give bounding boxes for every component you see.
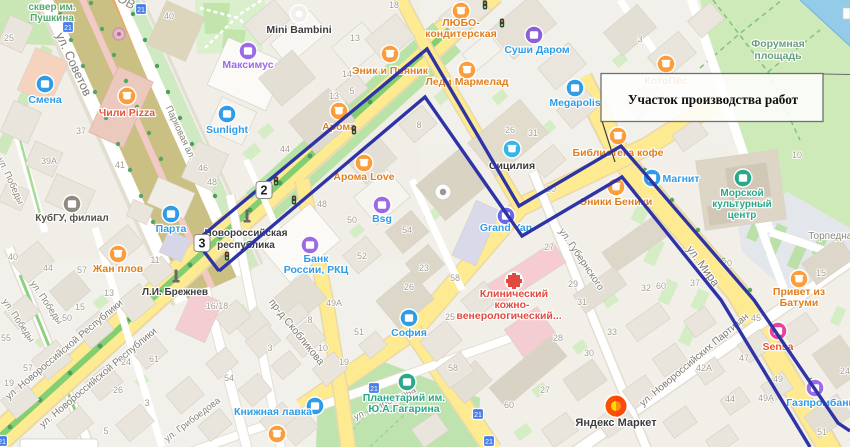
svg-text:26: 26	[505, 125, 515, 135]
svg-text:площадь: площадь	[754, 50, 802, 62]
svg-text:центр: центр	[728, 210, 757, 221]
svg-text:18: 18	[389, 0, 399, 10]
svg-text:23: 23	[419, 263, 429, 273]
svg-text:15: 15	[816, 268, 826, 278]
svg-text:10: 10	[792, 150, 802, 160]
svg-text:Эник и Пьяник: Эник и Пьяник	[352, 65, 429, 77]
svg-text:42А: 42А	[696, 363, 712, 373]
svg-text:58: 58	[450, 273, 460, 283]
svg-text:Максимус: Максимус	[222, 59, 273, 71]
svg-text:Sunlight: Sunlight	[206, 124, 248, 136]
svg-text:61: 61	[149, 354, 159, 364]
svg-text:39А: 39А	[41, 156, 57, 166]
svg-text:58: 58	[448, 363, 458, 373]
svg-text:47: 47	[739, 353, 749, 363]
svg-text:София: София	[391, 327, 427, 339]
svg-text:40: 40	[8, 252, 18, 262]
svg-text:Книжная лавка: Книжная лавка	[234, 406, 312, 418]
svg-text:30: 30	[584, 348, 594, 358]
svg-text:Bsg: Bsg	[372, 213, 392, 225]
svg-text:57: 57	[23, 363, 33, 373]
svg-text:54: 54	[402, 225, 412, 235]
svg-text:48: 48	[317, 199, 327, 209]
svg-text:13: 13	[329, 91, 339, 101]
svg-text:Л.И. Брежнев: Л.И. Брежнев	[142, 287, 208, 298]
svg-text:46: 46	[198, 163, 208, 173]
svg-text:37: 37	[76, 126, 86, 136]
svg-text:19: 19	[4, 378, 14, 388]
svg-text:Grand Yan: Grand Yan	[480, 222, 532, 234]
svg-text:27: 27	[540, 385, 550, 395]
svg-text:21: 21	[0, 439, 6, 446]
svg-text:Mini Bambini: Mini Bambini	[266, 24, 331, 36]
svg-text:41: 41	[115, 160, 125, 170]
svg-text:Смена: Смена	[28, 94, 62, 106]
svg-text:13: 13	[104, 288, 114, 298]
svg-text:15: 15	[75, 302, 85, 312]
svg-text:32: 32	[641, 283, 651, 293]
svg-text:5: 5	[103, 426, 108, 436]
svg-text:3: 3	[144, 398, 149, 408]
svg-text:13: 13	[350, 33, 360, 43]
svg-text:Суши Даром: Суши Даром	[504, 44, 570, 56]
svg-text:25: 25	[445, 312, 455, 322]
svg-text:60: 60	[656, 281, 666, 291]
svg-text:Арома Love: Арома Love	[333, 171, 394, 183]
svg-text:26: 26	[113, 385, 123, 395]
svg-text:44: 44	[280, 144, 290, 154]
svg-text:26: 26	[404, 282, 414, 292]
svg-text:венерологический...: венерологический...	[456, 310, 561, 322]
svg-text:49А: 49А	[758, 393, 774, 403]
svg-text:21: 21	[64, 25, 72, 32]
svg-text:Парта: Парта	[156, 223, 187, 235]
svg-text:11: 11	[150, 255, 159, 265]
svg-text:50: 50	[347, 215, 357, 225]
svg-text:Жан плов: Жан плов	[92, 263, 144, 275]
svg-text:55: 55	[1, 333, 11, 343]
svg-text:Чили Pizza: Чили Pizza	[99, 107, 155, 119]
svg-text:Магнит: Магнит	[662, 173, 699, 185]
svg-text:50: 50	[62, 313, 72, 323]
svg-text:40: 40	[164, 11, 174, 21]
svg-text:45: 45	[751, 313, 761, 323]
svg-text:44: 44	[725, 394, 735, 404]
svg-text:Газпромбанк: Газпромбанк	[786, 397, 850, 409]
svg-text:27: 27	[544, 242, 554, 252]
svg-text:37: 37	[690, 278, 700, 288]
svg-text:Леди Мармелад: Леди Мармелад	[425, 76, 508, 88]
svg-text:сквер им.: сквер им.	[28, 2, 76, 13]
svg-text:28: 28	[553, 333, 563, 343]
svg-text:31: 31	[528, 128, 538, 138]
svg-text:3: 3	[199, 237, 206, 251]
svg-text:10: 10	[318, 343, 328, 353]
svg-text:Торпедная: Торпедная	[808, 231, 850, 242]
svg-text:21: 21	[137, 7, 145, 14]
svg-text:60: 60	[504, 400, 514, 410]
svg-text:КубГУ, филиал: КубГУ, филиал	[35, 212, 108, 224]
svg-text:29: 29	[568, 279, 578, 289]
svg-text:51: 51	[817, 427, 827, 437]
svg-text:кондитерская: кондитерская	[425, 28, 496, 40]
svg-text:21: 21	[370, 386, 378, 393]
svg-text:Батуми: Батуми	[780, 297, 819, 309]
svg-text:8: 8	[416, 120, 421, 130]
svg-text:14: 14	[342, 69, 352, 79]
svg-text:52: 52	[357, 251, 367, 261]
svg-text:3: 3	[637, 34, 642, 44]
svg-text:России, РКЦ: России, РКЦ	[284, 264, 349, 276]
svg-text:16/18: 16/18	[206, 301, 229, 311]
svg-text:3: 3	[267, 343, 272, 353]
svg-text:Форумная: Форумная	[751, 38, 804, 50]
svg-text:31: 31	[577, 297, 587, 307]
svg-text:49: 49	[773, 374, 783, 384]
svg-text:51: 51	[354, 327, 364, 337]
svg-text:Новороссийская: Новороссийская	[205, 228, 288, 239]
svg-text:5: 5	[349, 86, 354, 96]
svg-text:Морской: Морской	[720, 188, 763, 199]
svg-text:2: 2	[261, 184, 268, 198]
svg-text:Яндекс Маркет: Яндекс Маркет	[575, 417, 657, 429]
svg-text:48: 48	[207, 177, 217, 187]
svg-text:Megapolis: Megapolis	[549, 97, 601, 109]
svg-text:Ю.А.Гагарина: Ю.А.Гагарина	[368, 403, 439, 415]
svg-text:44: 44	[43, 263, 53, 273]
svg-text:25: 25	[4, 33, 14, 43]
svg-text:24: 24	[840, 366, 850, 376]
svg-text:Участок производства работ: Участок производства работ	[628, 92, 799, 107]
svg-text:19: 19	[339, 357, 349, 367]
svg-text:54: 54	[224, 373, 234, 383]
svg-text:49А: 49А	[326, 298, 342, 308]
svg-text:21: 21	[485, 439, 493, 446]
svg-text:57: 57	[77, 265, 87, 275]
svg-text:21: 21	[474, 412, 482, 419]
svg-text:24: 24	[121, 357, 131, 367]
svg-text:культурный: культурный	[712, 199, 771, 210]
svg-text:8: 8	[307, 315, 312, 325]
svg-text:33: 33	[607, 327, 617, 337]
